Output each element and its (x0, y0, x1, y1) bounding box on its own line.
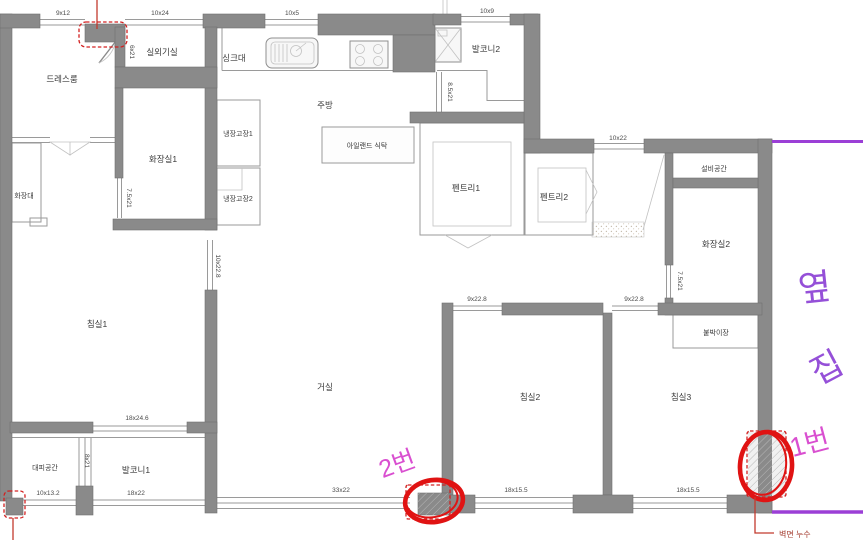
dim-9x12: 9x12 (56, 10, 70, 17)
dim-18x15.5-right: 18x15.5 (676, 487, 700, 494)
washer-icon (435, 28, 461, 62)
dim-7.5x21-left: 7.5x21 (125, 188, 132, 208)
floor-plan-drawing: 드레스룸 실외기실 싱크대 주방 아일랜드 식탁 발코니2 화장실1 화장대 냉… (0, 0, 863, 540)
note-neighbor-1: 옆 (796, 265, 833, 309)
note-spot1: 1번 (787, 424, 833, 463)
dim-7.5x21-right: 7.5x21 (676, 271, 683, 291)
room-label-outdoor-unit: 실외기실 (146, 47, 177, 57)
room-label-bedroom3: 침실3 (671, 392, 692, 402)
room-label-fridge2: 냉장고장2 (223, 194, 253, 203)
room-label-pantry1: 펜트리1 (452, 183, 480, 193)
room-label-island-table: 아일랜드 식탁 (347, 141, 388, 150)
room-label-bedroom1: 침실1 (87, 319, 108, 329)
dim-9x22.8-left: 9x22.8 (467, 296, 487, 303)
dim-10x24: 10x24 (151, 10, 169, 17)
walls (0, 14, 772, 515)
room-label-living: 거실 (317, 382, 333, 392)
room-label-bathroom1: 화장실1 (149, 154, 177, 164)
room-label-bathroom2: 화장실2 (702, 239, 730, 249)
dim-10x5: 10x5 (285, 10, 299, 17)
room-label-bedroom2: 침실2 (520, 392, 541, 402)
room-label-closet: 붙박이장 (703, 328, 729, 337)
dim-8.5x21: 8.5x21 (446, 82, 453, 102)
room-label-sink-counter: 싱크대 (222, 53, 245, 63)
dim-10x13.2: 10x13.2 (36, 490, 60, 497)
note-spot2: 2번 (375, 445, 419, 484)
stove-icon (350, 41, 388, 68)
room-label-dressroom: 드레스룸 (46, 74, 77, 84)
dim-10x9: 10x9 (480, 8, 494, 15)
dim-6x21: 6x21 (128, 45, 135, 59)
room-label-vanity: 화장대 (14, 191, 33, 200)
sink-icon (266, 38, 318, 68)
dim-10x22.8: 10x22.8 (214, 254, 221, 278)
room-label-kitchen: 주방 (317, 100, 333, 110)
room-label-balcony1: 발코니1 (122, 465, 150, 475)
room-label-utility: 설비공간 (701, 164, 727, 173)
wall-leak-label: 벽면 누수 (779, 529, 811, 539)
dim-10x22: 10x22 (609, 135, 627, 142)
note-neighbor-2: 집 (804, 344, 849, 392)
dim-33x22: 33x22 (332, 487, 350, 494)
dim-9x22.8-right: 9x22.8 (624, 296, 644, 303)
room-label-refuge: 대피공간 (32, 463, 58, 472)
dim-8x21: 8x21 (83, 454, 90, 468)
room-label-fridge1: 냉장고장1 (223, 129, 253, 138)
dim-18x24.6: 18x24.6 (125, 415, 149, 422)
floor-plan-page: 드레스룸 실외기실 싱크대 주방 아일랜드 식탁 발코니2 화장실1 화장대 냉… (0, 0, 863, 540)
dim-18x22: 18x22 (127, 490, 145, 497)
dim-18x15.5-mid: 18x15.5 (504, 487, 528, 494)
room-label-balcony2: 발코니2 (472, 44, 500, 54)
room-label-pantry2: 펜트리2 (540, 192, 568, 202)
